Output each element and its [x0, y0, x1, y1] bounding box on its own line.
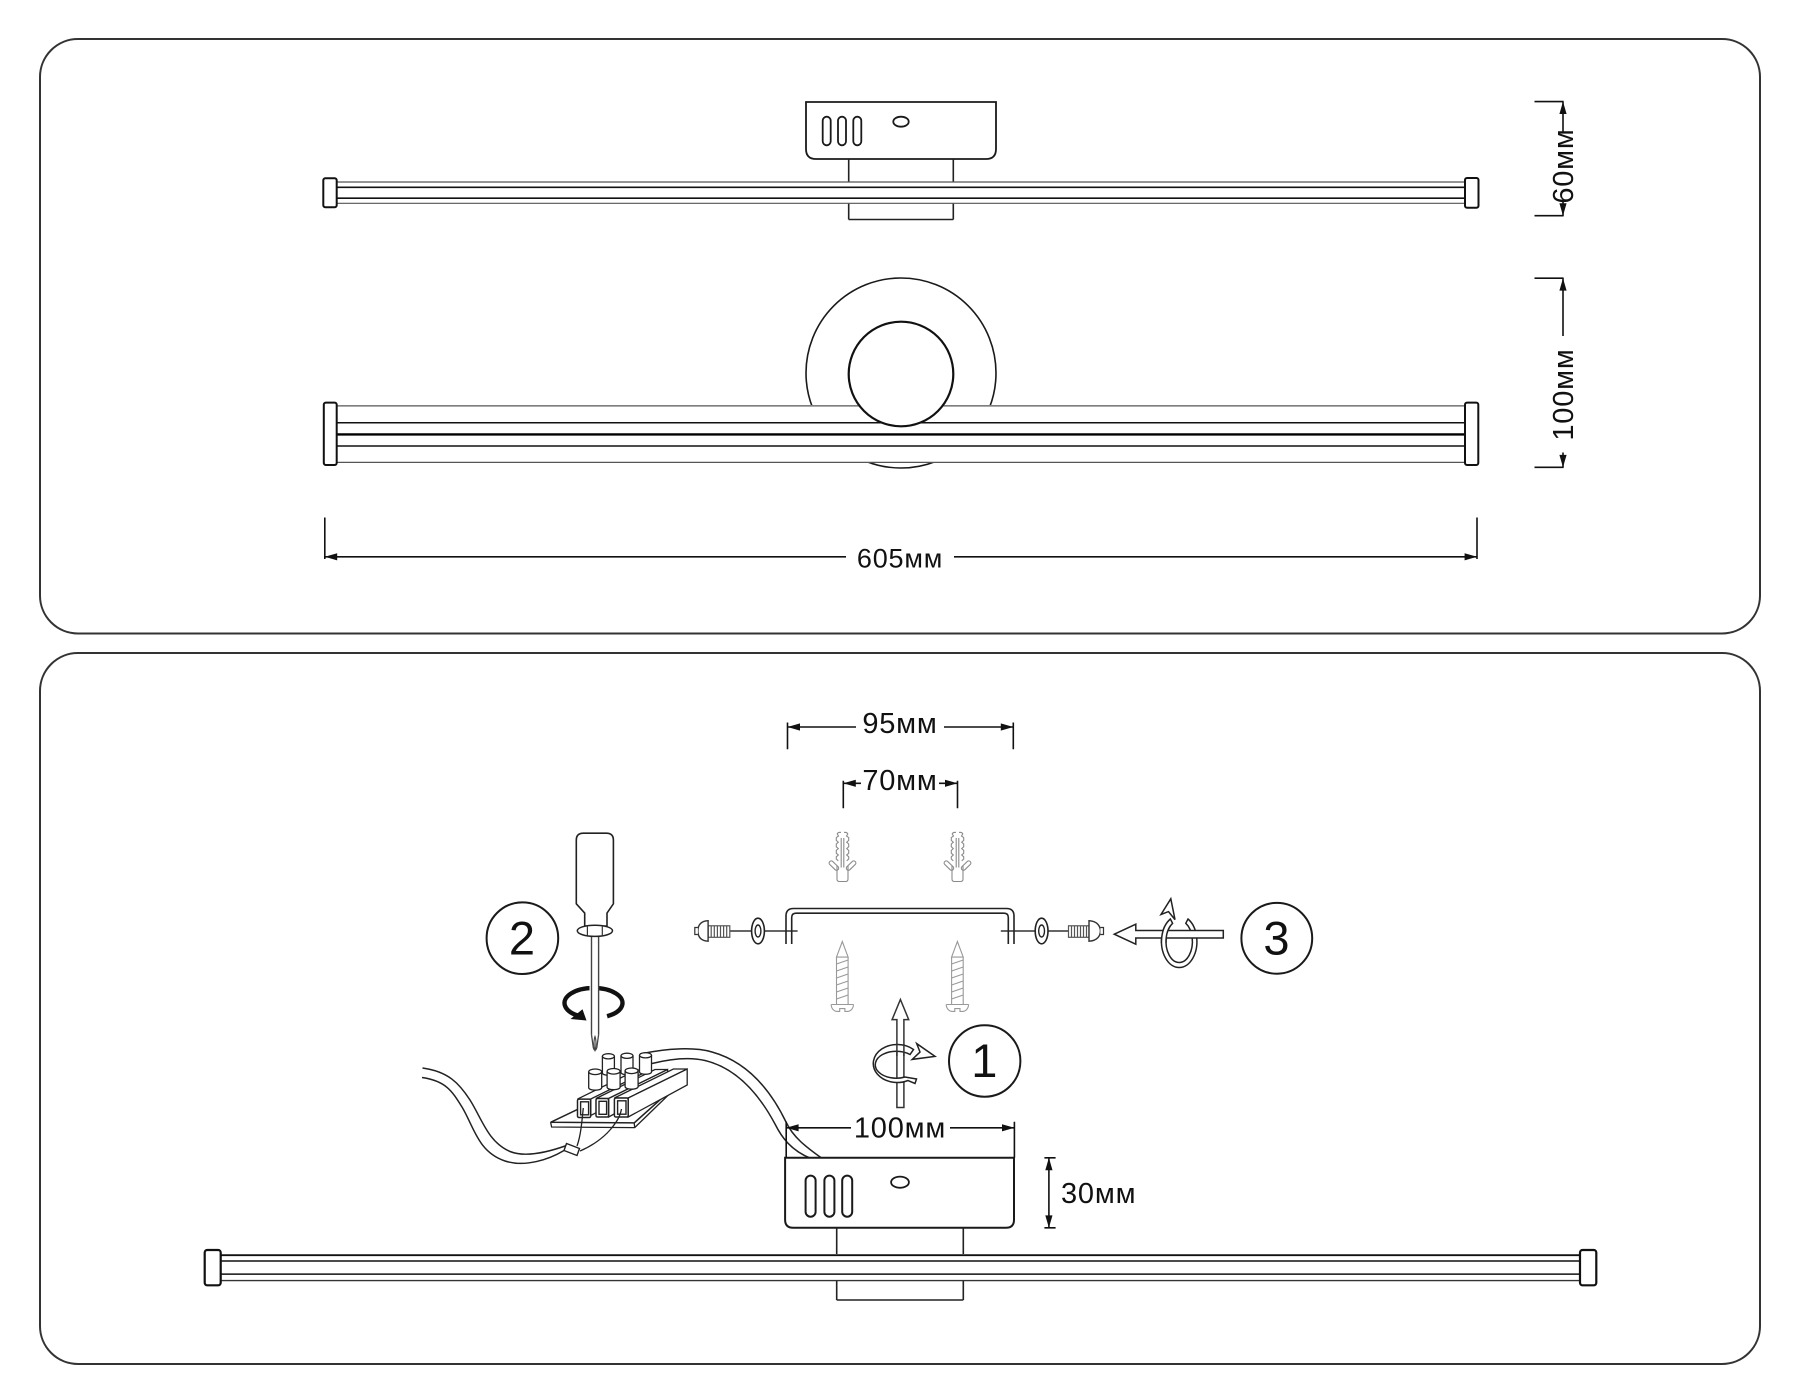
- svg-text:3: 3: [1263, 912, 1290, 965]
- svg-text:70мм: 70мм: [862, 765, 937, 797]
- svg-text:100мм: 100мм: [854, 1113, 946, 1145]
- svg-text:100мм: 100мм: [1548, 348, 1580, 440]
- svg-text:30мм: 30мм: [1061, 1178, 1136, 1210]
- svg-text:60мм: 60мм: [1548, 128, 1580, 203]
- svg-text:95мм: 95мм: [862, 708, 937, 740]
- svg-text:605мм: 605мм: [857, 544, 943, 574]
- svg-text:1: 1: [971, 1034, 998, 1087]
- svg-text:2: 2: [509, 912, 536, 965]
